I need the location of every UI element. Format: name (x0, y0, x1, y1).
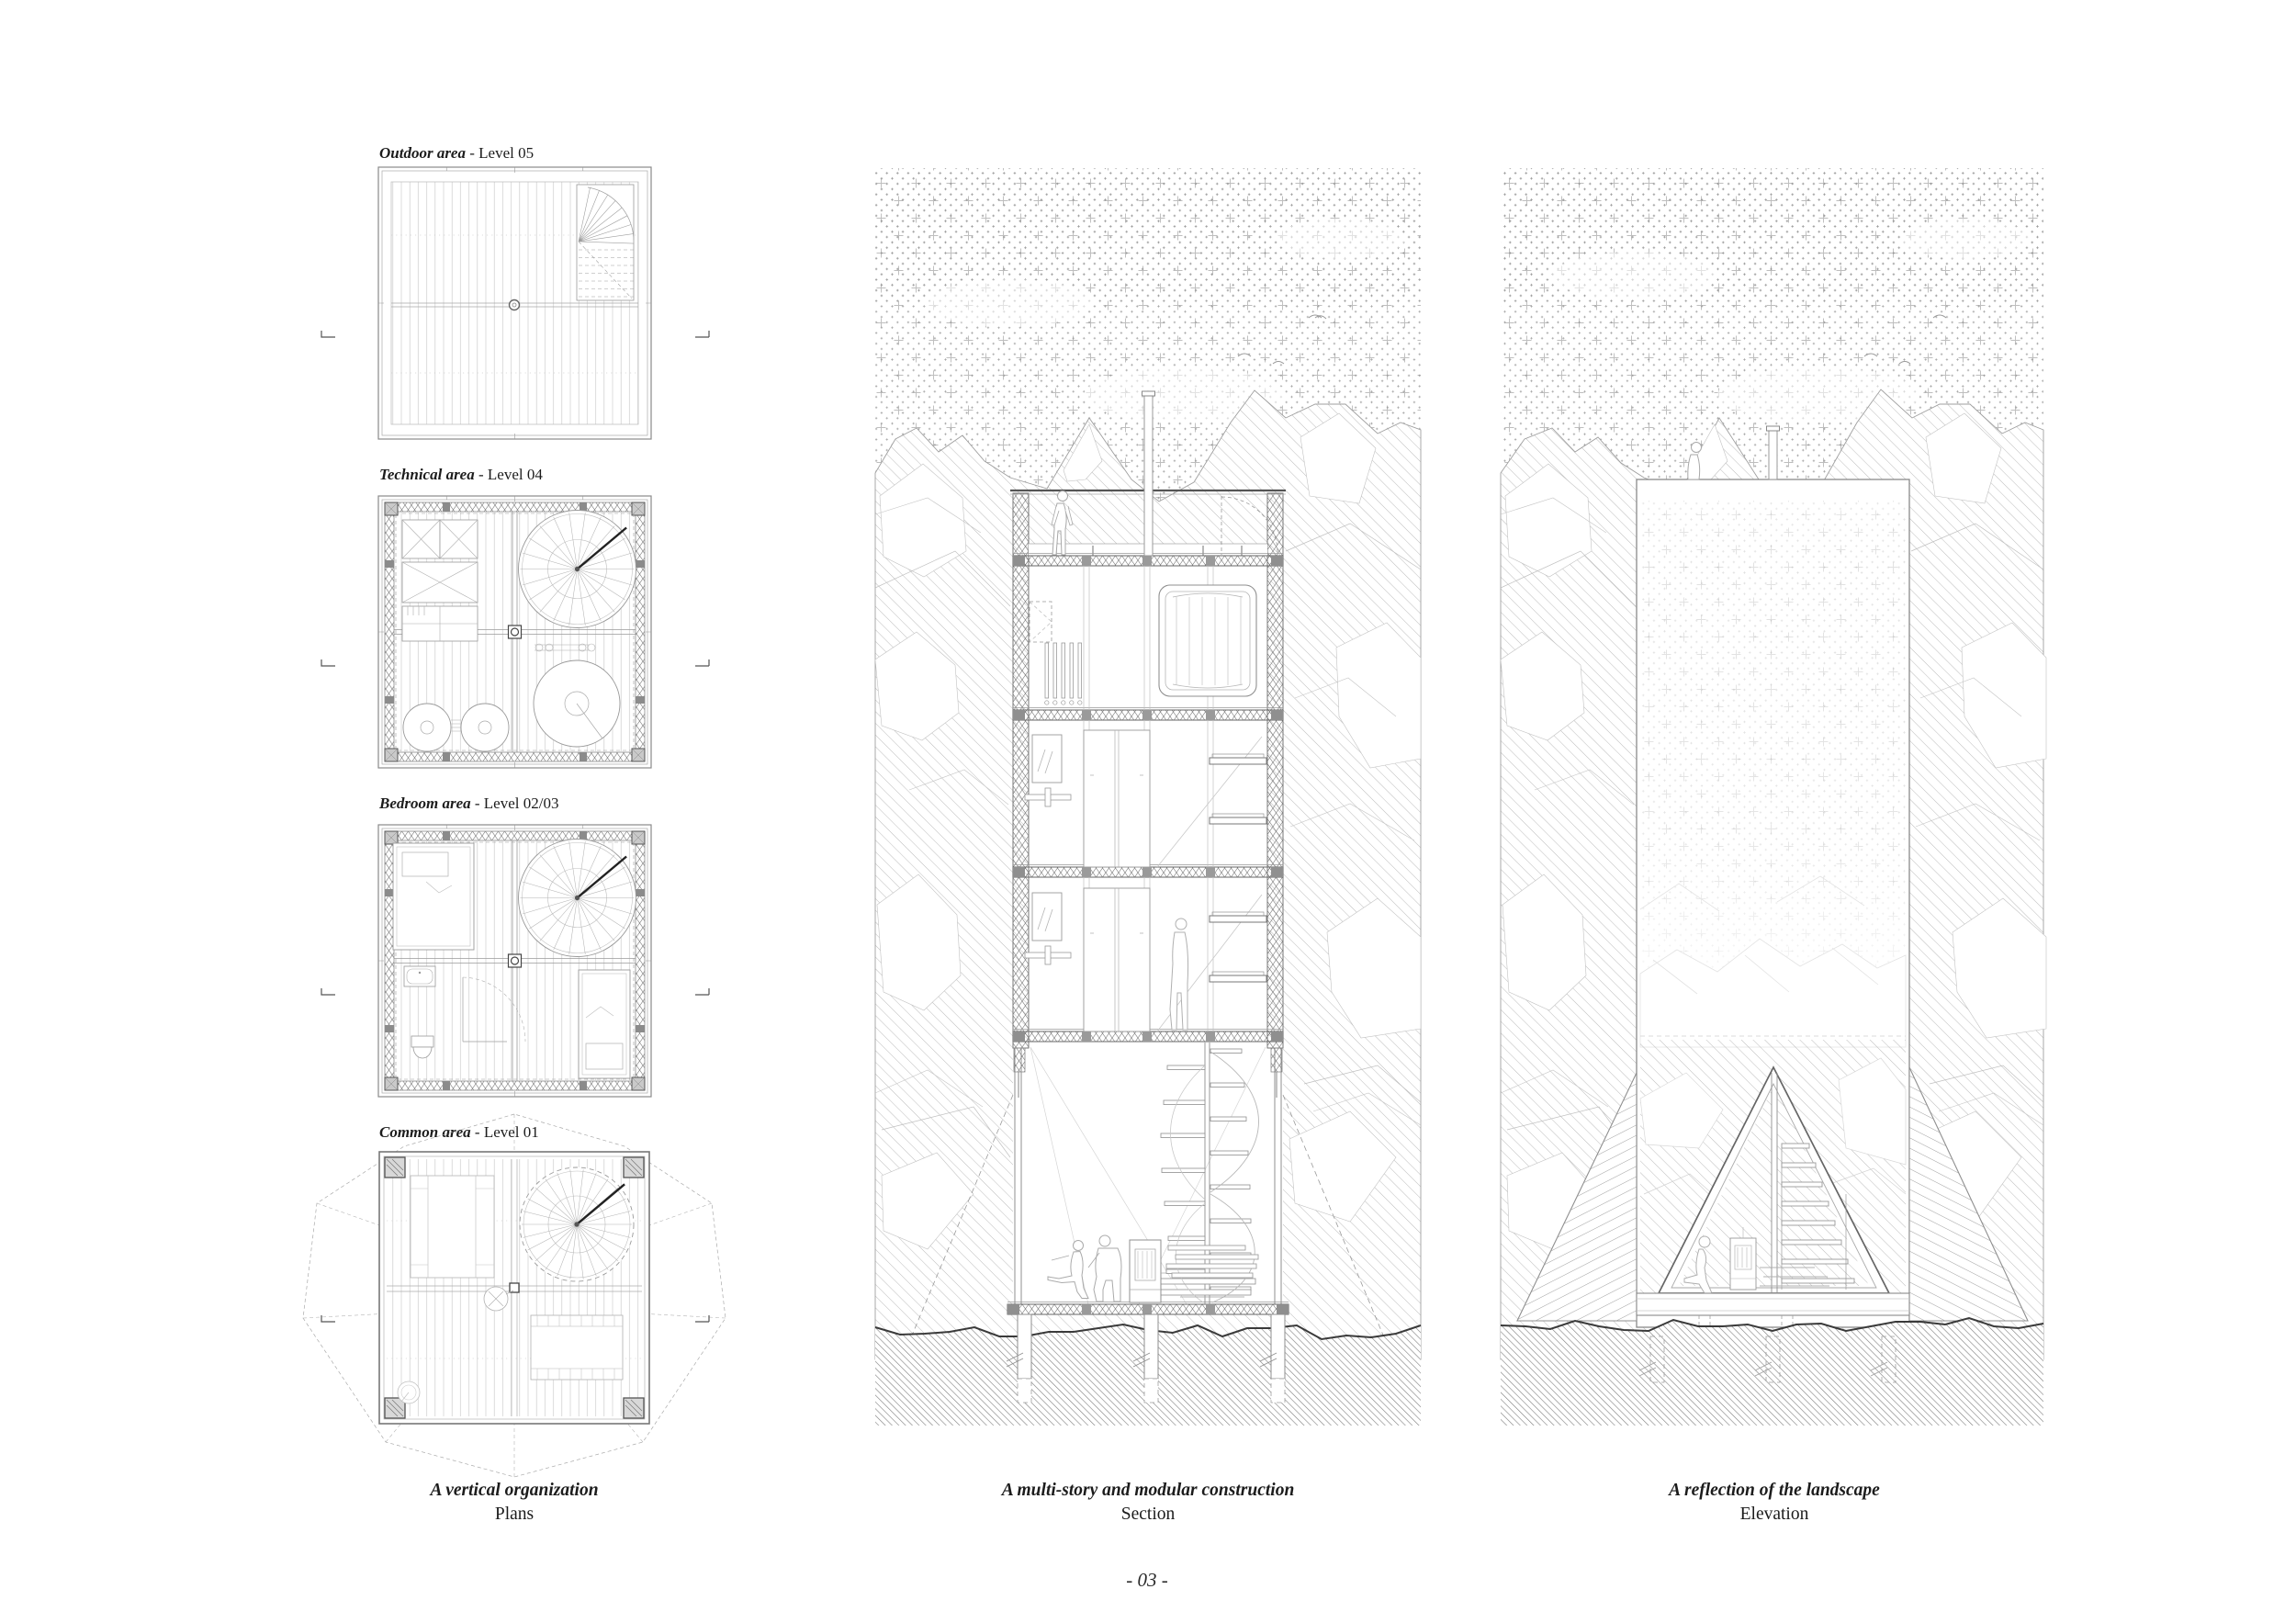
svg-text:A reflection of the landscape: A reflection of the landscape (1667, 1481, 1880, 1500)
svg-text:- 03 -: - 03 - (1126, 1569, 1168, 1591)
svg-text:Technical area - Level 04: Technical area - Level 04 (379, 466, 543, 483)
svg-text:Common area - Level 01: Common area - Level 01 (379, 1123, 539, 1141)
svg-text:Elevation: Elevation (1740, 1505, 1809, 1524)
svg-text:Plans: Plans (495, 1505, 534, 1524)
svg-text:Bedroom area - Level 02/03: Bedroom area - Level 02/03 (378, 795, 558, 812)
svg-text:Section: Section (1121, 1505, 1176, 1524)
svg-text:Outdoor area - Level 05: Outdoor area - Level 05 (379, 144, 534, 162)
svg-text:A vertical organization: A vertical organization (428, 1481, 598, 1500)
svg-text:A multi-story and modular cons: A multi-story and modular construction (1000, 1481, 1295, 1500)
